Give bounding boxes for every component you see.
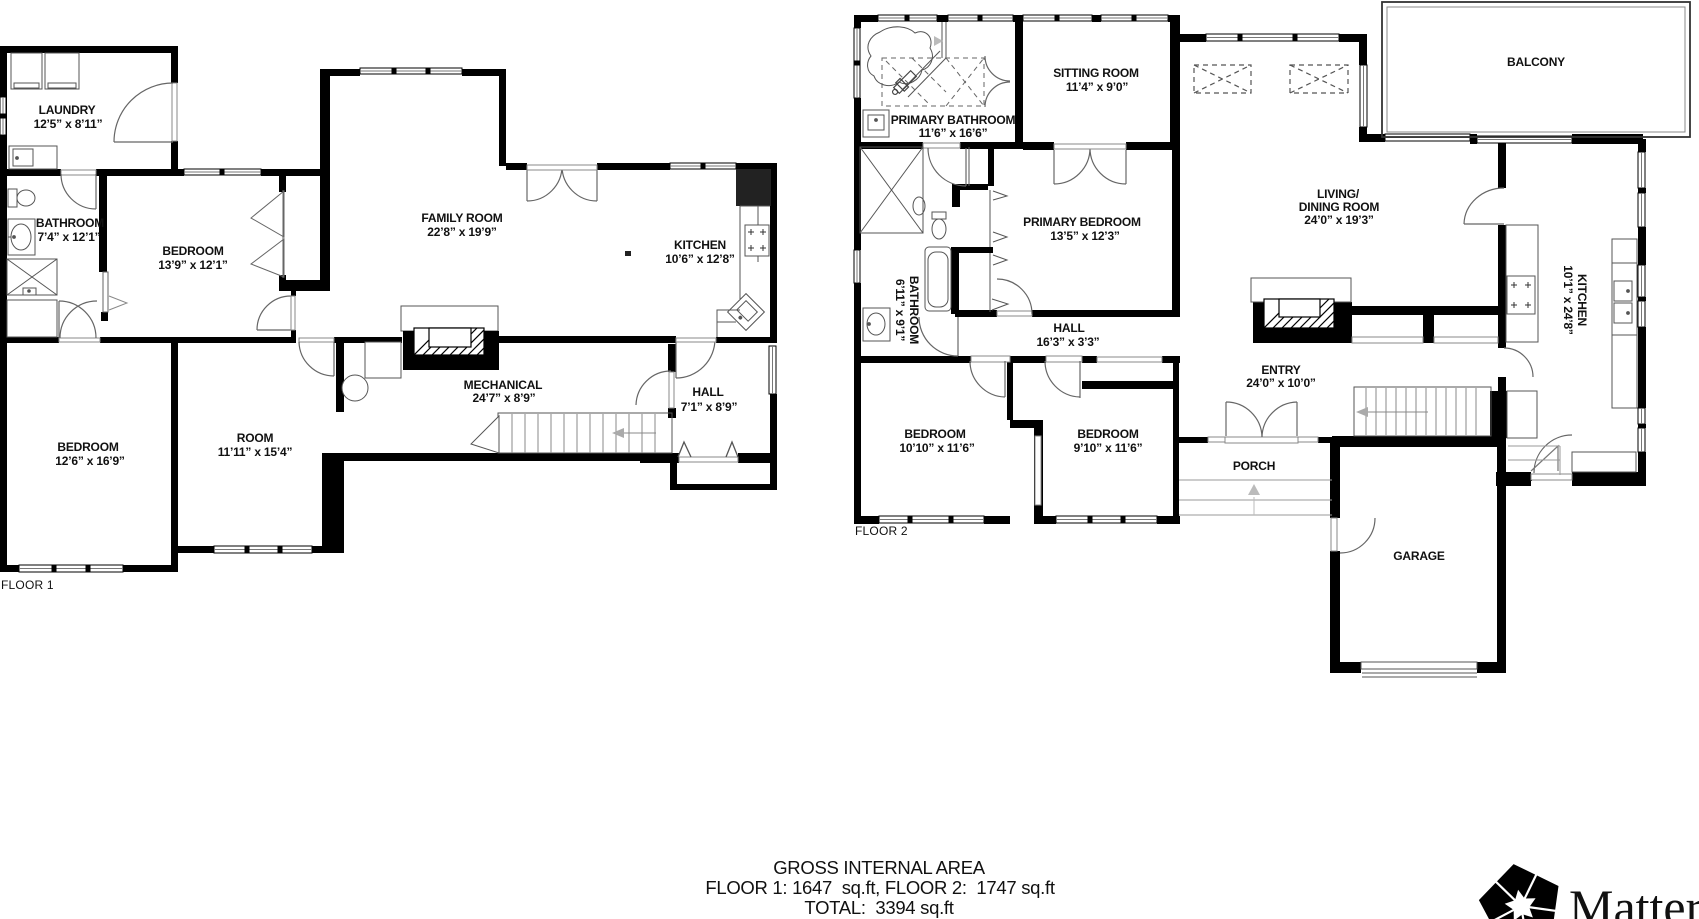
svg-text:13’9” x 12’1”: 13’9” x 12’1” bbox=[158, 258, 228, 272]
svg-text:MECHANICAL: MECHANICAL bbox=[464, 378, 543, 392]
svg-text:GROSS INTERNAL AREA: GROSS INTERNAL AREA bbox=[773, 857, 986, 878]
svg-text:24’7” x 8’9”: 24’7” x 8’9” bbox=[473, 391, 536, 405]
svg-text:FAMILY ROOM: FAMILY ROOM bbox=[421, 211, 502, 225]
svg-text:LAUNDRY: LAUNDRY bbox=[39, 103, 96, 117]
svg-text:BATHROOM: BATHROOM bbox=[36, 216, 104, 230]
svg-text:BEDROOM: BEDROOM bbox=[162, 244, 223, 258]
svg-text:PRIMARY BEDROOM: PRIMARY BEDROOM bbox=[1023, 215, 1141, 229]
svg-text:FLOOR 2: FLOOR 2 bbox=[855, 524, 908, 538]
svg-text:BEDROOM: BEDROOM bbox=[57, 440, 118, 454]
svg-text:HALL: HALL bbox=[1053, 321, 1084, 335]
svg-text:24’0” x 10’0”: 24’0” x 10’0” bbox=[1246, 376, 1316, 390]
svg-text:ENTRY: ENTRY bbox=[1261, 363, 1300, 377]
svg-text:13’5” x 12’3”: 13’5” x 12’3” bbox=[1050, 229, 1120, 243]
svg-text:22’8” x 19’9”: 22’8” x 19’9” bbox=[427, 225, 497, 239]
svg-text:7’1” x 8’9”: 7’1” x 8’9” bbox=[681, 400, 738, 414]
svg-text:LIVING/: LIVING/ bbox=[1317, 187, 1360, 201]
svg-text:PORCH: PORCH bbox=[1233, 459, 1275, 473]
svg-text:6’11” x 9’1”: 6’11” x 9’1” bbox=[893, 279, 907, 342]
svg-text:11’11” x 15’4”: 11’11” x 15’4” bbox=[218, 445, 293, 459]
svg-text:TOTAL: 3394 sq.ft: TOTAL: 3394 sq.ft bbox=[804, 897, 953, 918]
svg-text:10’10” x 11’6”: 10’10” x 11’6” bbox=[899, 441, 974, 455]
svg-text:BALCONY: BALCONY bbox=[1507, 55, 1565, 69]
svg-text:HALL: HALL bbox=[692, 385, 723, 399]
svg-text:GARAGE: GARAGE bbox=[1393, 549, 1445, 563]
svg-text:DINING ROOM: DINING ROOM bbox=[1299, 200, 1380, 214]
svg-text:10’6” x 12’8”: 10’6” x 12’8” bbox=[665, 252, 735, 266]
svg-text:11’6” x 16’6”: 11’6” x 16’6” bbox=[919, 126, 988, 140]
svg-text:FLOOR 1: 1647 sq.ft, FLOOR 2:: FLOOR 1: 1647 sq.ft, FLOOR 2: 1747 sq.ft bbox=[705, 877, 1055, 898]
svg-text:11’4” x 9’0”: 11’4” x 9’0” bbox=[1066, 80, 1129, 94]
svg-text:KITCHEN: KITCHEN bbox=[674, 238, 726, 252]
svg-text:Matterport: Matterport bbox=[1569, 879, 1699, 919]
svg-text:16’3” x 3’3”: 16’3” x 3’3” bbox=[1037, 335, 1100, 349]
svg-text:12’6” x 16’9”: 12’6” x 16’9” bbox=[55, 454, 125, 468]
svg-text:ROOM: ROOM bbox=[237, 431, 274, 445]
svg-text:BEDROOM: BEDROOM bbox=[1077, 427, 1138, 441]
svg-text:KITCHEN: KITCHEN bbox=[1575, 274, 1589, 326]
svg-text:12’5” x 8’11”: 12’5” x 8’11” bbox=[34, 117, 103, 131]
svg-text:BATHROOM: BATHROOM bbox=[907, 276, 921, 344]
svg-text:24’0” x 19’3”: 24’0” x 19’3” bbox=[1304, 213, 1374, 227]
svg-text:7’4” x 12’1”: 7’4” x 12’1” bbox=[38, 230, 101, 244]
svg-text:9’10” x 11’6”: 9’10” x 11’6” bbox=[1074, 441, 1143, 455]
svg-text:BEDROOM: BEDROOM bbox=[904, 427, 965, 441]
svg-text:FLOOR 1: FLOOR 1 bbox=[1, 578, 54, 592]
svg-text:PRIMARY BATHROOM: PRIMARY BATHROOM bbox=[891, 113, 1016, 127]
svg-text:SITTING ROOM: SITTING ROOM bbox=[1053, 66, 1139, 80]
svg-text:10’1” x 24’8”: 10’1” x 24’8” bbox=[1561, 265, 1575, 335]
